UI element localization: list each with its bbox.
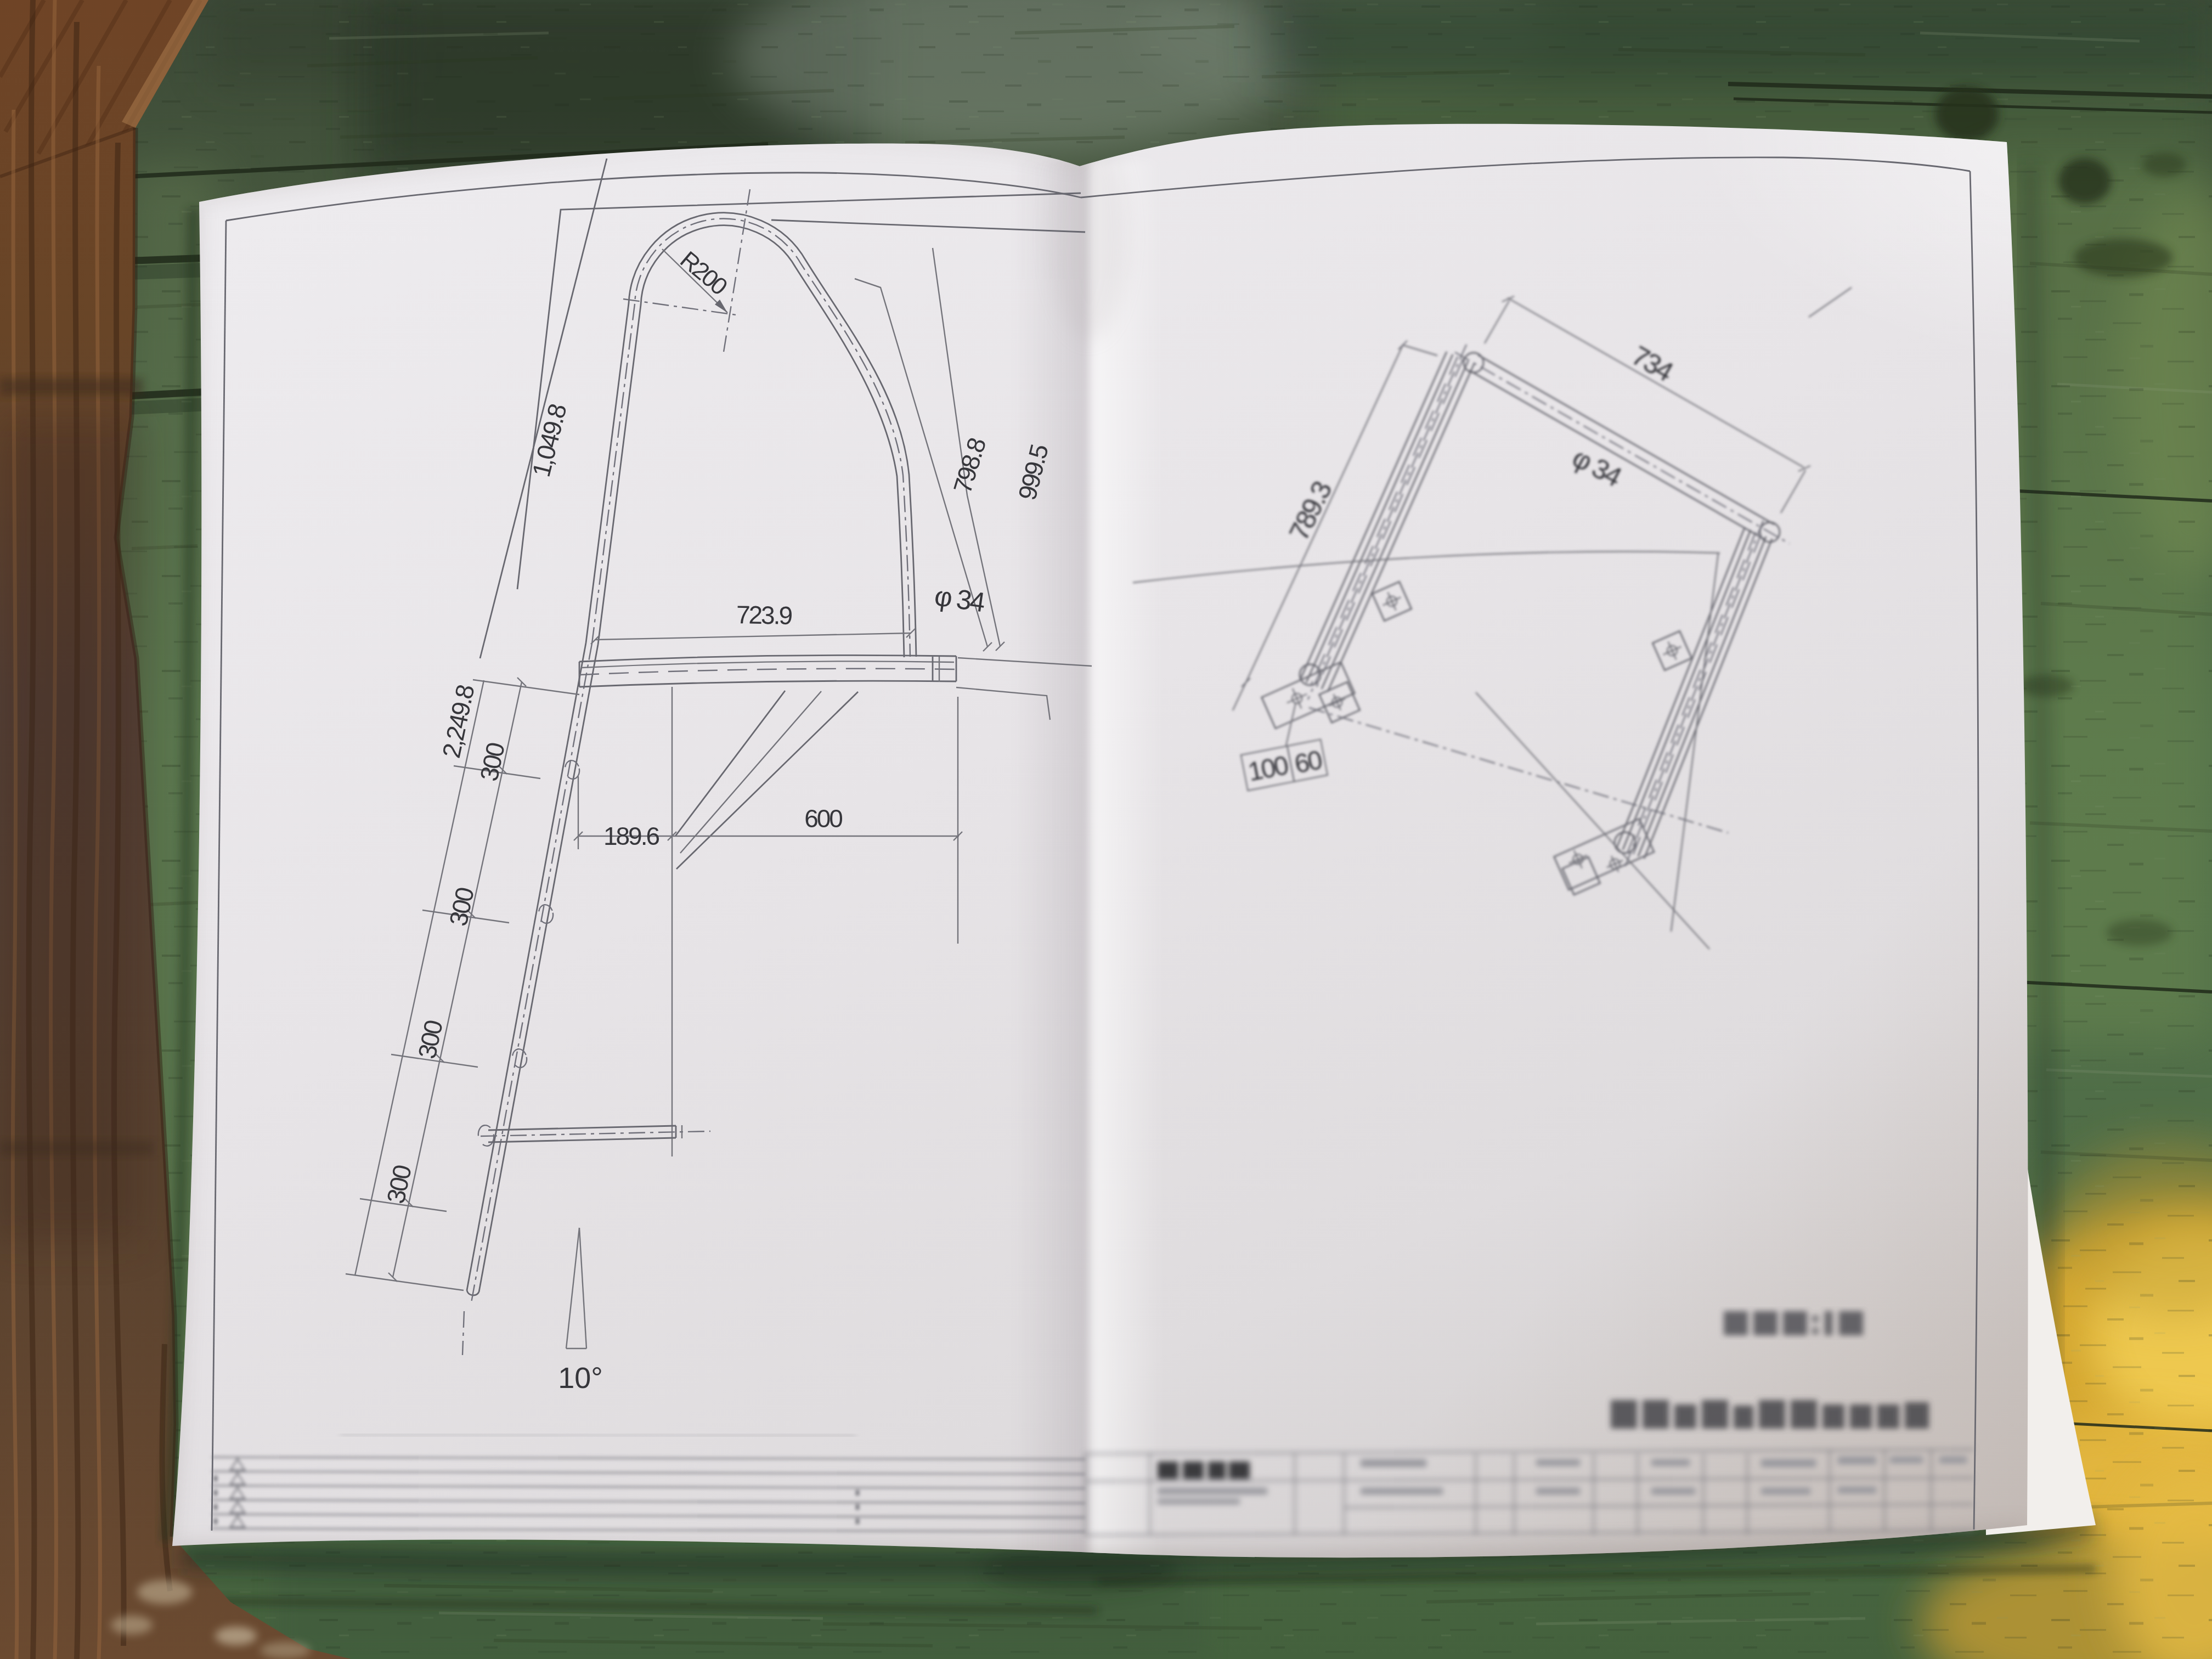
svg-text:723.9: 723.9 <box>736 600 792 630</box>
svg-text:189.6: 189.6 <box>603 822 659 850</box>
svg-text:10°: 10° <box>558 1361 603 1394</box>
svg-text:600: 600 <box>804 804 842 833</box>
